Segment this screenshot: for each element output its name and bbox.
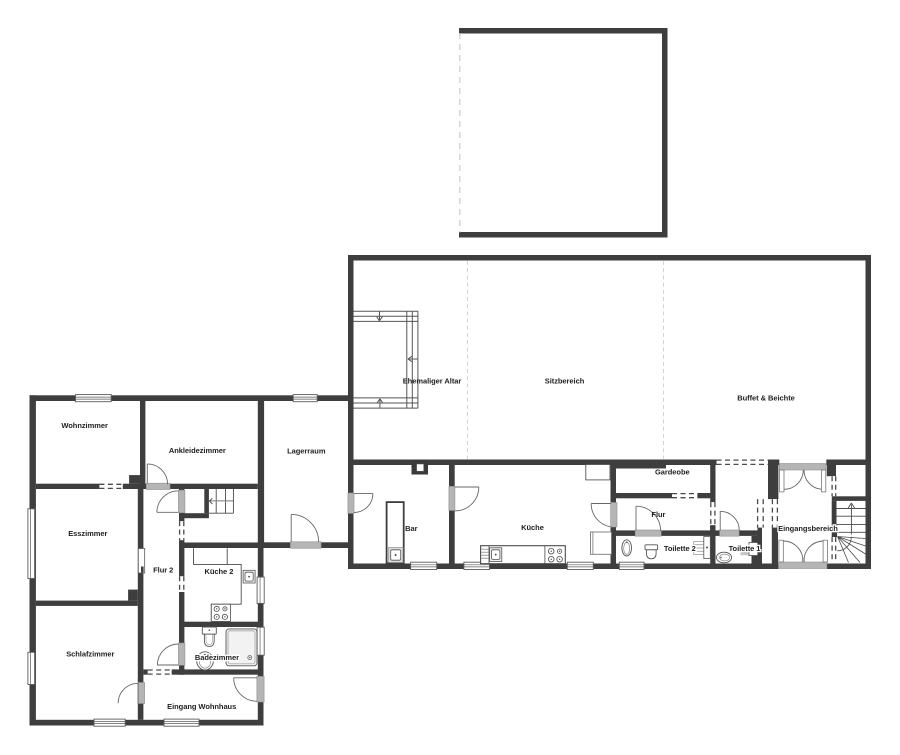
svg-text:Bar: Bar bbox=[405, 524, 417, 533]
svg-text:Gardeobe: Gardeobe bbox=[655, 467, 690, 476]
svg-text:Eingangsbereich: Eingangsbereich bbox=[778, 524, 838, 533]
svg-text:Küche: Küche bbox=[521, 523, 544, 532]
svg-text:Sitzbereich: Sitzbereich bbox=[545, 377, 585, 386]
svg-text:Küche 2: Küche 2 bbox=[204, 567, 233, 576]
svg-text:Flur: Flur bbox=[651, 510, 665, 519]
svg-text:Toilette 1: Toilette 1 bbox=[729, 544, 761, 553]
svg-text:Lagerraum: Lagerraum bbox=[287, 447, 326, 456]
svg-text:Badezimmer: Badezimmer bbox=[195, 653, 239, 662]
svg-text:Wohnzimmer: Wohnzimmer bbox=[61, 421, 108, 430]
svg-text:Flur 2: Flur 2 bbox=[153, 565, 173, 574]
svg-text:Esszimmer: Esszimmer bbox=[68, 529, 107, 538]
svg-text:Ankleidezimmer: Ankleidezimmer bbox=[169, 446, 226, 455]
svg-text:Toilette 2: Toilette 2 bbox=[664, 544, 696, 553]
svg-text:Schlafzimmer: Schlafzimmer bbox=[66, 650, 114, 659]
svg-text:Ehemaliger Altar: Ehemaliger Altar bbox=[403, 377, 462, 386]
svg-text:Eingang Wohnhaus: Eingang Wohnhaus bbox=[167, 702, 236, 711]
svg-text:Buffet & Beichte: Buffet & Beichte bbox=[737, 394, 795, 403]
